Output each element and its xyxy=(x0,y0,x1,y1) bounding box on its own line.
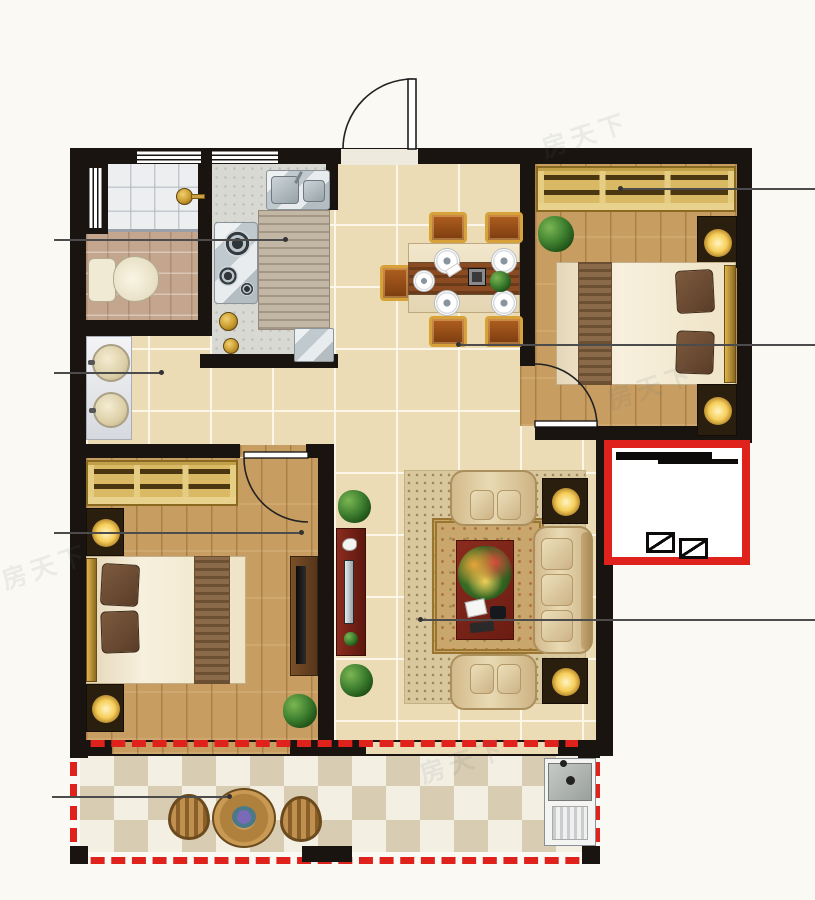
kitchen-jar xyxy=(223,338,239,354)
wall-right-upper xyxy=(737,148,752,443)
place-setting xyxy=(491,248,517,274)
side-table-lamp xyxy=(542,478,588,524)
tv-icon xyxy=(344,560,354,624)
window-kitchen xyxy=(212,150,278,163)
sink-bowl-right xyxy=(303,180,325,202)
sliding-window-icon xyxy=(646,532,675,553)
leader-line-kitchen xyxy=(54,239,286,241)
pillow xyxy=(675,330,714,374)
shower-handle xyxy=(191,194,205,199)
dining-chair xyxy=(485,316,523,347)
leader-line-living xyxy=(420,619,815,621)
place-setting xyxy=(413,270,435,292)
vanity-basin-2 xyxy=(93,392,129,428)
wardrobe-bedroom-bottom xyxy=(86,460,238,506)
shower-divider xyxy=(106,229,200,232)
window-shaft xyxy=(88,168,102,228)
leader-line-bedroom-top xyxy=(620,188,815,190)
table-centerpiece xyxy=(232,806,256,828)
plant-bedroom-top xyxy=(538,216,574,252)
plant-living xyxy=(340,664,373,697)
nightstand xyxy=(697,216,737,268)
balcony-corner xyxy=(70,740,88,758)
tv-icon xyxy=(296,566,306,664)
wall-bedroom-bottom-right xyxy=(318,444,334,740)
dining-chair xyxy=(429,316,467,347)
lamp-glow-icon xyxy=(552,488,580,516)
balcony-corner xyxy=(70,846,88,864)
equipment-bar-icon xyxy=(658,459,738,464)
decor-item xyxy=(342,538,357,551)
bed-headboard xyxy=(724,265,736,383)
pillow xyxy=(100,610,139,653)
bedroom-bottom-door: Bedroom door swing xyxy=(235,445,320,537)
washing-machine-vent-icon xyxy=(552,806,588,840)
bed-runner xyxy=(194,556,230,684)
pillow xyxy=(100,563,140,607)
vanity-basin-1 xyxy=(92,344,130,382)
faucet-icon xyxy=(89,408,96,413)
lamp-glow-icon xyxy=(704,397,732,425)
laundry-faucet-icon xyxy=(560,760,567,767)
dining-chair xyxy=(485,212,523,243)
armchair-top xyxy=(450,470,537,526)
bed-headboard xyxy=(86,558,97,682)
balcony-corner xyxy=(582,846,600,864)
nightstand xyxy=(697,384,737,436)
window-bathroom xyxy=(137,150,201,163)
kitchen-jar xyxy=(219,312,238,331)
armchair-bottom xyxy=(450,654,537,710)
wall-bathroom-bottom xyxy=(86,320,212,336)
wall-bath-kitchen xyxy=(198,164,212,336)
leader-dot xyxy=(418,617,423,622)
laundry-drain-icon xyxy=(566,776,575,785)
leader-dot xyxy=(456,342,461,347)
leader-line-dining xyxy=(458,344,815,346)
toilet-bowl xyxy=(113,256,159,302)
leader-line-bedroom-bottom xyxy=(54,532,302,534)
centerpiece-tray xyxy=(468,268,486,286)
faucet-icon xyxy=(88,360,95,365)
nightstand xyxy=(86,684,124,732)
stove-burner-icon xyxy=(218,266,238,286)
leader-dot xyxy=(159,370,164,375)
table-plant xyxy=(490,271,511,292)
kitchen-counter xyxy=(258,210,330,330)
lamp-glow-icon xyxy=(552,668,580,696)
dining-chair xyxy=(380,265,411,301)
leader-dot xyxy=(299,530,304,535)
place-setting xyxy=(434,290,460,316)
place-setting xyxy=(491,290,517,316)
plant-living xyxy=(338,490,371,523)
sliding-window-icon xyxy=(679,538,708,559)
lamp-glow-icon xyxy=(92,695,120,723)
floor-plan: Entry door swing Bedroom door swing Bedr… xyxy=(0,0,815,900)
stove-burner-icon xyxy=(224,230,251,257)
leader-line-balcony xyxy=(52,796,230,798)
plant-bedroom-bottom xyxy=(283,694,317,728)
toilet-tank xyxy=(88,258,116,302)
bedroom-top-door: Bedroom door swing xyxy=(525,358,605,433)
coffee-table-item xyxy=(490,606,506,619)
bistro-chair xyxy=(280,796,322,842)
sofa xyxy=(533,526,593,654)
bistro-chair xyxy=(168,794,210,840)
pillow xyxy=(675,269,715,314)
balcony-wall-segment xyxy=(302,846,352,862)
leader-line-hallway xyxy=(54,372,162,374)
side-table-lamp xyxy=(542,658,588,704)
wall-bedroom-bottom-top-a xyxy=(70,444,240,458)
leader-dot xyxy=(227,794,232,799)
fridge xyxy=(294,328,334,362)
balcony-corner xyxy=(578,740,600,758)
leader-dot xyxy=(618,186,623,191)
leader-dot xyxy=(283,237,288,242)
entry-door: Entry door swing xyxy=(335,73,425,168)
decor-plant xyxy=(344,632,358,646)
stove-burner-icon xyxy=(240,282,254,296)
lamp-glow-icon xyxy=(704,229,732,257)
dining-chair xyxy=(429,212,467,243)
